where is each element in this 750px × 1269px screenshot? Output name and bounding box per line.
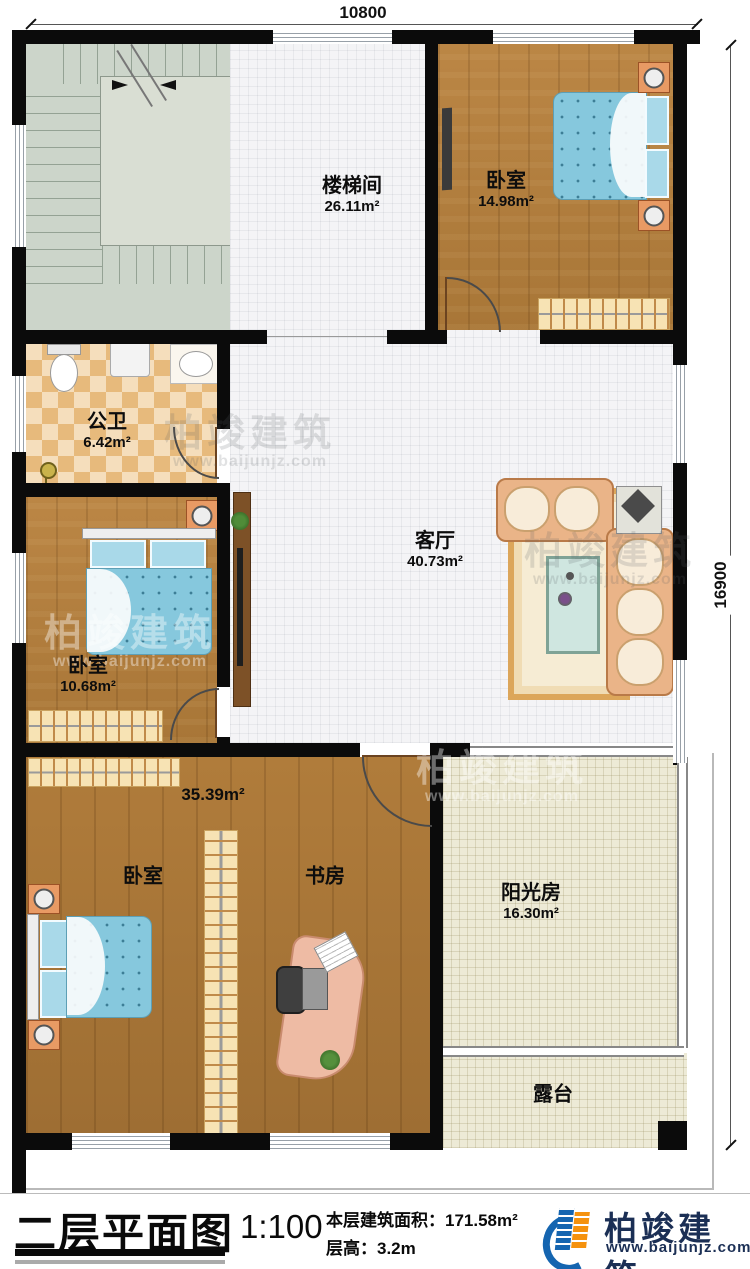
bedroom2-nightstand xyxy=(186,500,218,531)
label-sunroom: 阳光房 16.30m² xyxy=(501,882,561,922)
title-block: 二层平面图 1:100 本层建筑面积：171.58m² 层高：3.2m 柏竣建筑… xyxy=(0,1193,750,1269)
floor-area-value: 171.58m² xyxy=(445,1211,518,1230)
bedroom3-pillow-2 xyxy=(40,970,68,1018)
dim-tick xyxy=(725,39,736,50)
bedroom1-tv xyxy=(442,108,452,191)
label-study: 书房 xyxy=(305,866,345,889)
room-name: 卧室 xyxy=(478,170,534,193)
brand-logo-icon xyxy=(543,1204,593,1260)
bedroom1-pillow-1 xyxy=(645,96,669,145)
room-area: 35.39m² xyxy=(181,785,244,805)
stair-direction-arrow-right xyxy=(112,80,128,90)
room-name: 书房 xyxy=(305,866,345,889)
floor-area: 本层建筑面积：171.58m² xyxy=(326,1206,518,1231)
table-flowers-icon xyxy=(558,592,572,606)
stair-landing xyxy=(100,76,232,246)
window-right-living-2 xyxy=(673,660,687,763)
floor-area-label: 本层建筑面积： xyxy=(326,1211,445,1230)
floor-height-value: 3.2m xyxy=(377,1239,416,1258)
wardrobe-divider xyxy=(204,830,238,1135)
window-bottom-study xyxy=(270,1133,390,1150)
bedroom1-nightstand-top xyxy=(638,62,670,93)
floor-height: 层高：3.2m xyxy=(326,1234,416,1259)
sunroom-glass-right xyxy=(677,757,688,1048)
sofa-cushion xyxy=(616,638,664,686)
sofa-cushion xyxy=(616,538,664,586)
brand-website: www.baijunjz.com xyxy=(606,1239,750,1256)
wall-stairhall-bottom-b xyxy=(387,330,447,344)
room-area: 14.98m² xyxy=(478,193,534,210)
room-name: 卧室 xyxy=(60,655,116,678)
stair-direction-arrow-left xyxy=(160,80,176,90)
room-area: 26.11m² xyxy=(322,198,382,215)
room-name: 露台 xyxy=(533,1084,573,1107)
bedroom2-pillow-1 xyxy=(90,540,146,568)
sink-basin xyxy=(179,351,213,377)
room-area: 10.68m² xyxy=(60,678,116,695)
bedroom3-headboard xyxy=(27,914,39,1020)
wall-bedroom2-right xyxy=(217,497,230,687)
wall-suite-top-b xyxy=(430,743,470,757)
brand-name: 柏竣建筑 xyxy=(604,1202,750,1269)
wall-suite-top-a xyxy=(12,743,360,757)
label-bedroom1: 卧室 14.98m² xyxy=(478,170,534,210)
living-tv xyxy=(237,548,243,666)
bedroom2-wardrobe xyxy=(28,710,163,742)
bedroom3-pillow-1 xyxy=(40,920,68,968)
floor-drain-icon xyxy=(40,462,57,479)
desk-monitor xyxy=(302,968,328,1010)
eave-line-right xyxy=(712,753,714,1190)
opening-threshold-line xyxy=(267,336,387,337)
nightstand-knob xyxy=(34,889,55,910)
floor-height-label: 层高： xyxy=(326,1239,377,1258)
bedroom2-pillow-2 xyxy=(150,540,206,568)
label-living: 客厅 40.73m² xyxy=(407,530,463,570)
nightstand-knob xyxy=(644,205,665,226)
window-left-bedroom2 xyxy=(12,553,26,643)
window-top-bedroom1 xyxy=(493,30,634,44)
bedroom2-headboard xyxy=(82,528,216,539)
sofa-cushion xyxy=(554,486,600,532)
sofa-cushion xyxy=(616,588,664,636)
floor-plan: 柏竣建筑 www.baijunjz.com 柏竣建筑 www.baijunjz.… xyxy=(0,0,750,1269)
washer-icon xyxy=(110,341,150,377)
wall-bedroom1-left xyxy=(425,44,438,330)
table-bowl-icon xyxy=(566,572,574,580)
plan-scale: 1:100 xyxy=(240,1208,323,1246)
window-left-stairwell xyxy=(12,125,26,247)
bedroom1-pillow-2 xyxy=(645,149,669,198)
room-name: 公卫 xyxy=(83,411,131,434)
eave-line-bottom xyxy=(26,1188,714,1190)
nightstand-knob xyxy=(192,505,213,526)
room-area: 6.42m² xyxy=(83,434,131,451)
bedroom1-nightstand-bottom xyxy=(638,200,670,231)
window-right-living-1 xyxy=(673,365,687,463)
dim-width-label: 10800 xyxy=(333,3,392,23)
plant-icon xyxy=(320,1050,340,1070)
window-left-bathroom xyxy=(12,376,26,452)
sunroom-glass-top xyxy=(470,746,673,757)
label-bedroom2: 卧室 10.68m² xyxy=(60,655,116,695)
room-area: 16.30m² xyxy=(501,905,561,922)
bedroom3-nightstand-bottom xyxy=(28,1020,60,1050)
stair-treads-bottom xyxy=(102,246,230,284)
plant-icon xyxy=(231,512,249,530)
wall-bathroom-right xyxy=(217,344,230,429)
room-name: 客厅 xyxy=(407,530,463,553)
toilet-bowl xyxy=(50,354,78,392)
terrace-corner-post xyxy=(658,1121,687,1150)
coffee-table xyxy=(546,556,600,654)
sunroom-glass-bottom xyxy=(443,1046,684,1057)
bedroom1-wardrobe xyxy=(538,298,670,330)
window-bottom-bedroom3 xyxy=(72,1133,170,1150)
label-bedroom3: 卧室 xyxy=(123,866,163,889)
label-stairwell: 楼梯间 26.11m² xyxy=(322,175,382,215)
wall-bathroom-bottom xyxy=(12,483,230,497)
dim-tick xyxy=(725,1139,736,1150)
wall-stairhall-bottom-a xyxy=(12,330,267,344)
label-bathroom: 公卫 6.42m² xyxy=(83,411,131,451)
window-top-stairwell xyxy=(273,30,392,44)
room-name: 楼梯间 xyxy=(322,175,382,198)
bedroom3-wardrobe-top xyxy=(28,758,180,787)
sofa-cushion xyxy=(504,486,550,532)
nightstand-knob xyxy=(34,1025,55,1046)
bedroom1-bed-sheet xyxy=(610,93,646,197)
nightstand-knob xyxy=(644,67,665,88)
stair-treads-left xyxy=(26,84,102,284)
title-underline-2 xyxy=(15,1260,225,1264)
label-suite-area: 35.39m² xyxy=(181,785,244,805)
bedroom3-nightstand-top xyxy=(28,884,60,914)
room-area: 40.73m² xyxy=(407,553,463,570)
dim-line-top xyxy=(30,24,698,25)
label-terrace: 露台 xyxy=(533,1084,573,1107)
title-underline xyxy=(15,1249,225,1256)
room-name: 卧室 xyxy=(123,866,163,889)
wall-bedroom1-bottom xyxy=(540,330,673,344)
dim-height-label: 16900 xyxy=(711,555,731,614)
room-name: 阳光房 xyxy=(501,882,561,905)
